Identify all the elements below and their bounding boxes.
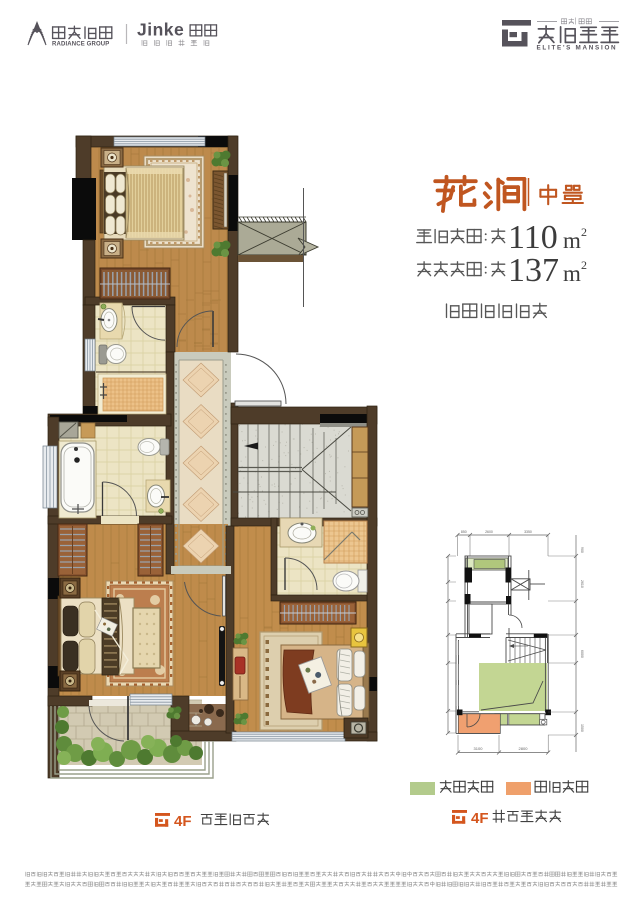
svg-text:2610: 2610 [580,580,584,588]
svg-text:RADIANCE GROUP: RADIANCE GROUP [52,42,109,48]
svg-text:2800: 2800 [519,746,529,751]
svg-text:6000: 6000 [580,650,584,658]
svg-text:3350: 3350 [524,530,532,534]
svg-text:2600: 2600 [485,530,493,534]
svg-text:4F: 4F [174,813,192,830]
svg-text:137: 137 [508,252,559,289]
svg-text:1500: 1500 [580,724,584,732]
svg-text:900: 900 [580,547,584,553]
svg-text:110: 110 [508,219,558,256]
svg-text:850: 850 [461,530,467,534]
svg-text:ELITE'S MANSION: ELITE'S MANSION [537,45,618,52]
svg-text:Jinke: Jinke [137,20,184,40]
svg-text:3100: 3100 [474,746,484,751]
svg-text:2: 2 [581,225,587,239]
svg-text:m: m [563,261,581,286]
svg-text:4F: 4F [471,810,489,827]
svg-text:m: m [563,228,581,253]
svg-text:2: 2 [581,258,587,272]
